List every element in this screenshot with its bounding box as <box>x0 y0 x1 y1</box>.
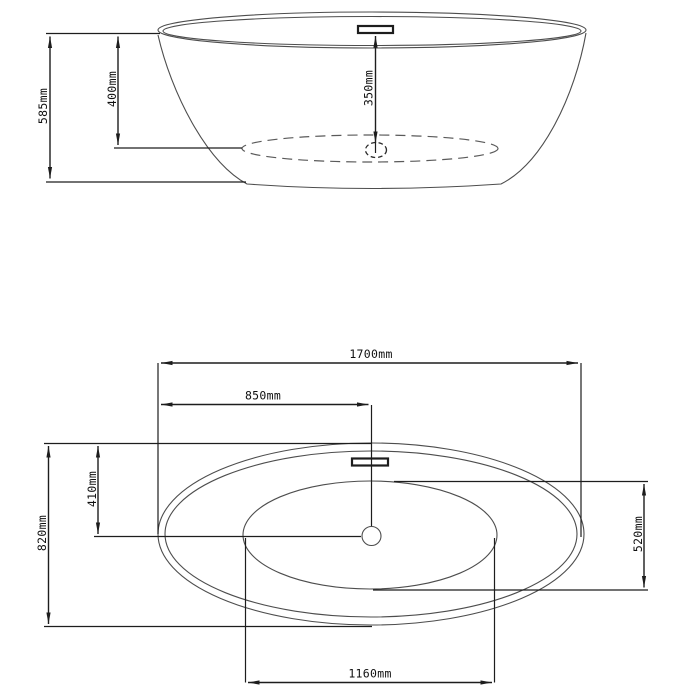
dim-label-overall-length: 1700mm <box>349 347 392 361</box>
dimension-centreline-from-top: 410mm <box>85 446 361 537</box>
dim-label-basin-width: 520mm <box>631 516 645 552</box>
drawing-svg: 585mm 400mm 350mm 1700mm <box>0 0 700 700</box>
plan-view: 1700mm 850mm 820mm 410mm 520mm <box>35 347 648 683</box>
dim-label-rim-to-basin-floor: 400mm <box>105 71 119 107</box>
dimension-overall-height: 585mm <box>36 34 246 183</box>
dimension-basin-width: 520mm <box>373 482 648 591</box>
overflow-slot <box>352 459 388 466</box>
dim-label-overall-width: 820mm <box>35 515 49 551</box>
tub-body-outline <box>158 33 586 189</box>
dim-label-overflow-to-drain: 350mm <box>362 70 376 106</box>
dimension-rim-to-basin-floor: 400mm <box>105 37 242 149</box>
dim-label-centreline: 410mm <box>85 471 99 507</box>
dimension-basin-length: 1160mm <box>246 538 495 683</box>
basin-outline <box>243 481 497 589</box>
dim-label-basin-length: 1160mm <box>348 667 391 681</box>
side-elevation-view: 585mm 400mm 350mm <box>36 12 586 189</box>
basin-floor-hidden-line <box>242 135 498 162</box>
dim-label-overall-height: 585mm <box>36 88 50 124</box>
drain-circle <box>362 527 381 546</box>
tub-rim-outer <box>158 12 586 48</box>
dim-label-drain-centre: 850mm <box>245 389 281 403</box>
bathtub-dimension-drawing: 585mm 400mm 350mm 1700mm <box>0 0 700 700</box>
dimension-drain-centre-from-left: 850mm <box>161 389 369 405</box>
overflow-slot <box>358 26 393 33</box>
tub-rim-inner <box>163 17 581 46</box>
dimension-overall-length: 1700mm <box>158 347 581 537</box>
